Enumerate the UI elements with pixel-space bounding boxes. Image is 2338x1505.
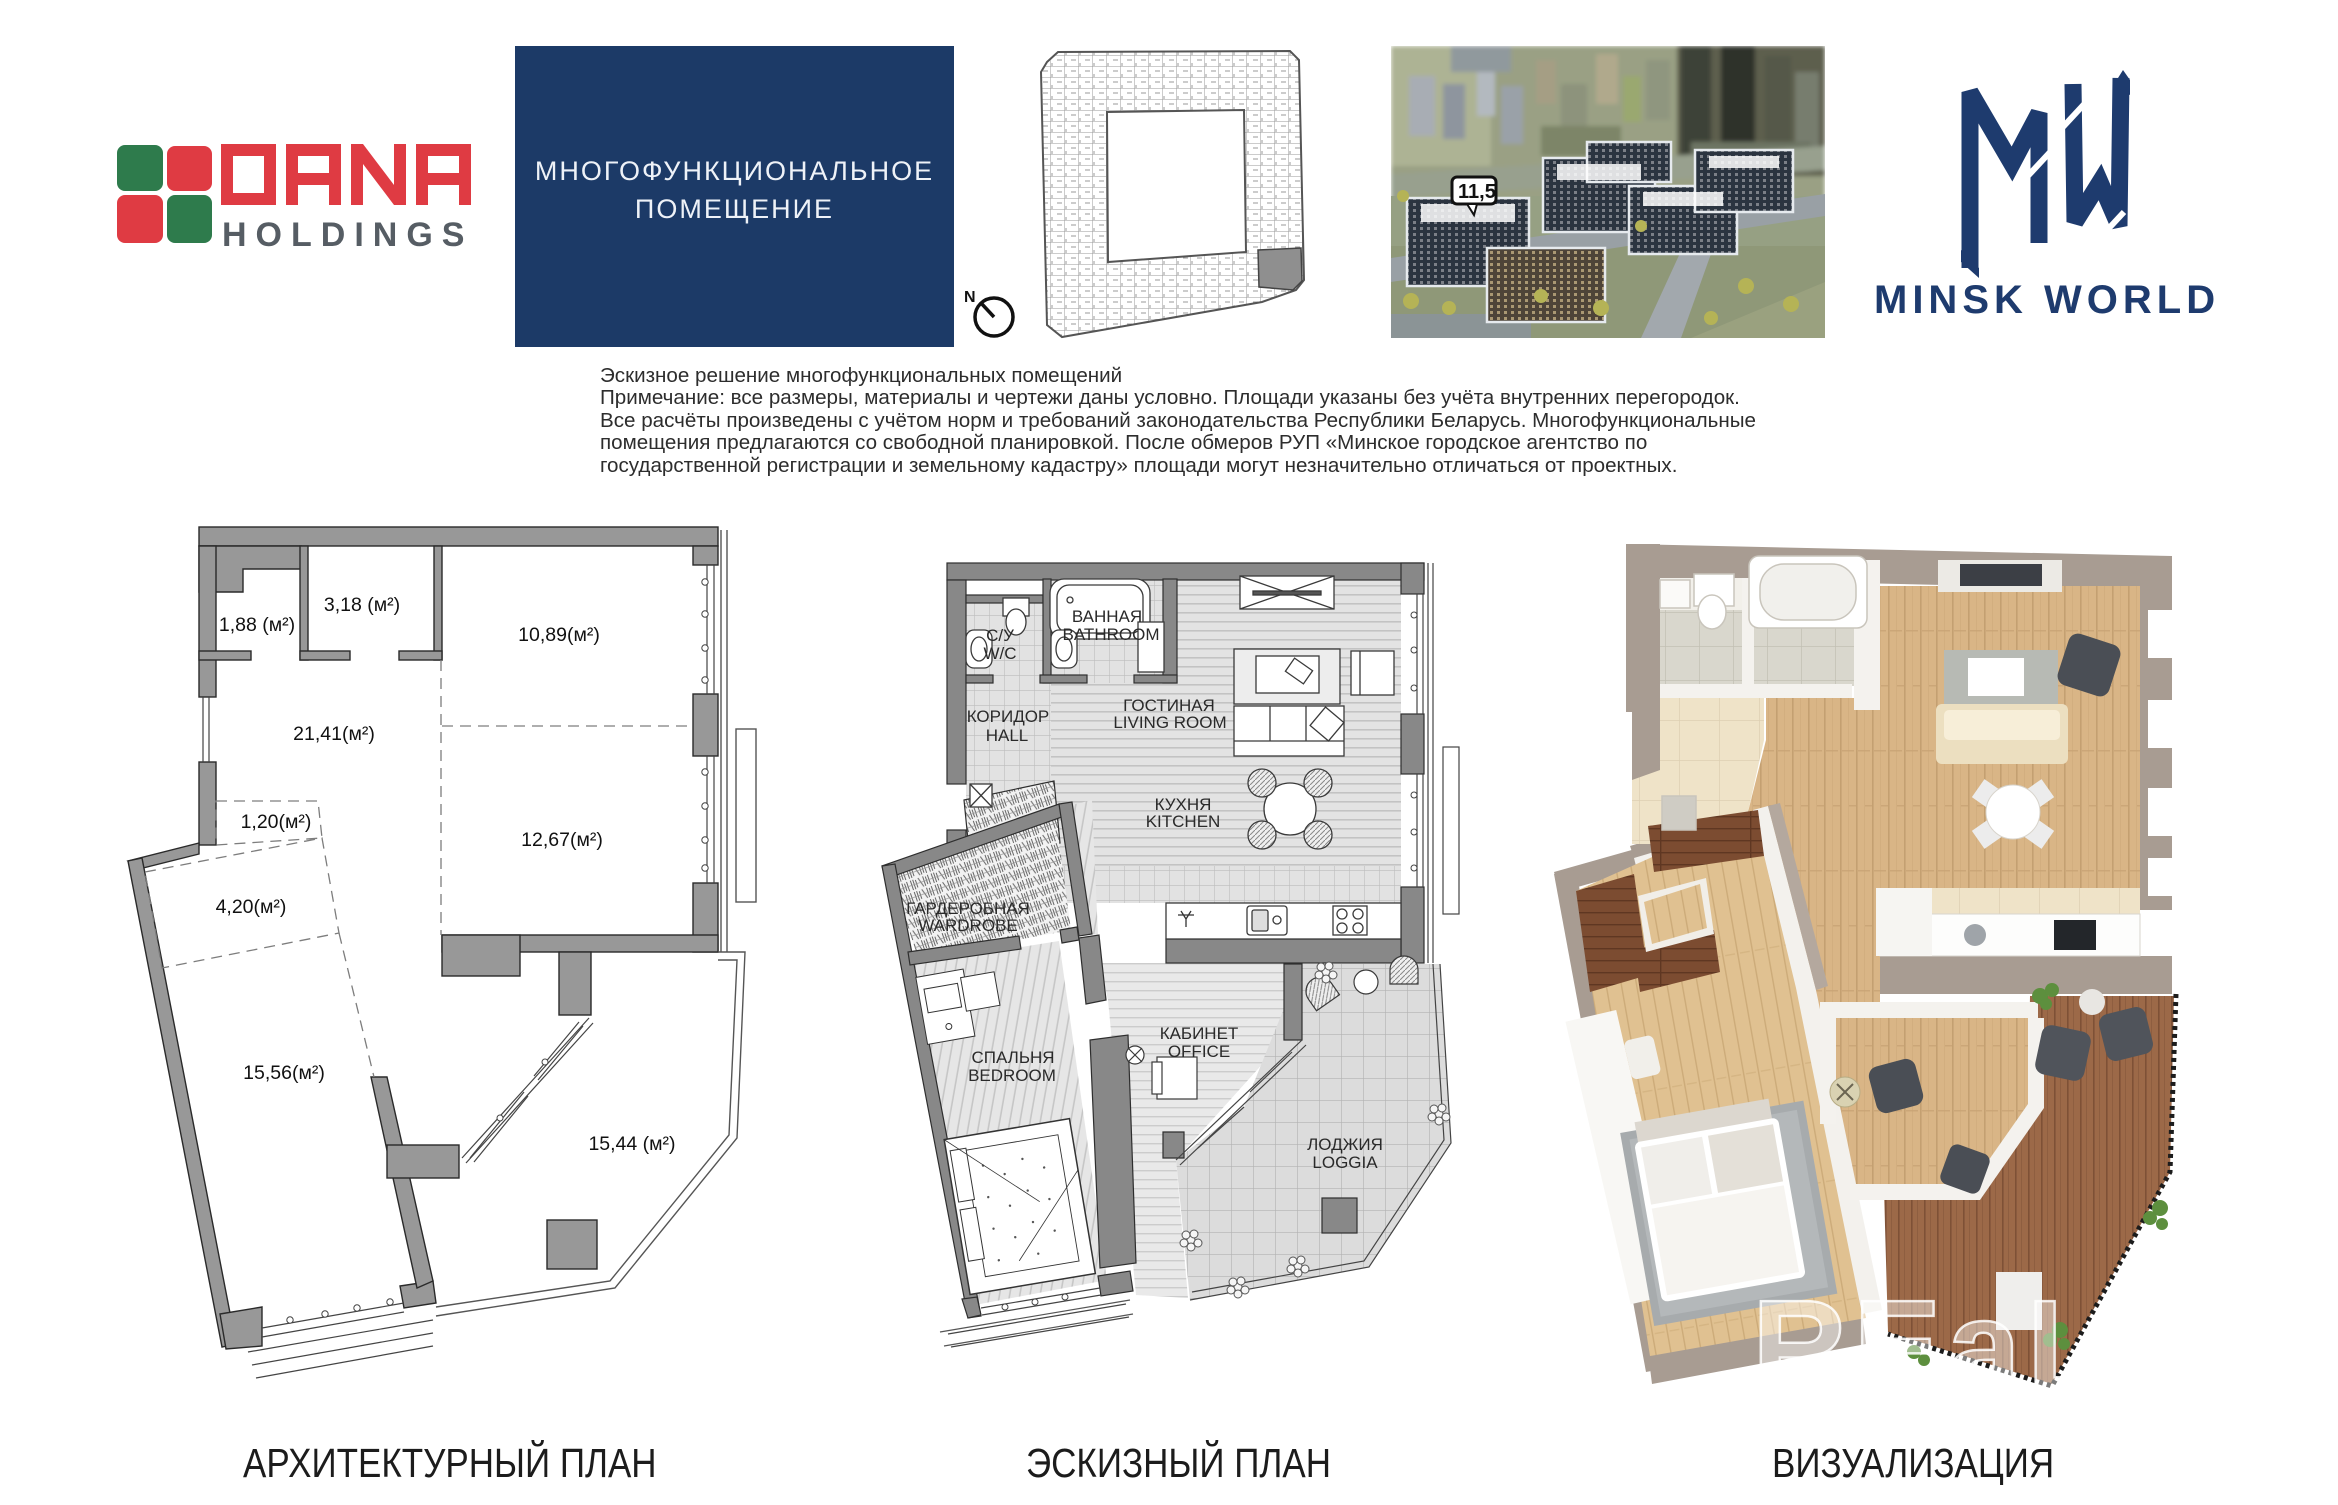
svg-text:С/У: С/У (986, 626, 1014, 645)
svg-text:HALL: HALL (986, 726, 1029, 745)
svg-text:WARDROBE: WARDROBE (918, 916, 1018, 935)
svg-text:12,67(м²): 12,67(м²) (521, 829, 603, 851)
svg-text:BEDROOM: BEDROOM (968, 1066, 1056, 1085)
svg-text:3,18 (м²): 3,18 (м²) (324, 594, 400, 616)
svg-text:KITCHEN: KITCHEN (1146, 812, 1221, 831)
svg-text:КАБИНЕТ: КАБИНЕТ (1160, 1024, 1239, 1043)
svg-text:ВАННАЯ: ВАННАЯ (1072, 607, 1142, 626)
svg-text:OFFICE: OFFICE (1168, 1042, 1230, 1061)
svg-text:15,56(м²): 15,56(м²) (243, 1062, 325, 1084)
svg-text:1,20(м²): 1,20(м²) (241, 811, 312, 833)
svg-text:1,88 (м²): 1,88 (м²) (219, 614, 295, 636)
svg-text:11,5: 11,5 (1458, 181, 1496, 203)
svg-text:СПАЛЬНЯ: СПАЛЬНЯ (971, 1048, 1054, 1067)
svg-text:N: N (964, 289, 976, 306)
svg-text:MINSK WORLD: MINSK WORLD (1874, 278, 2220, 320)
svg-text:15,44 (м²): 15,44 (м²) (588, 1133, 675, 1155)
svg-text:10,89(м²): 10,89(м²) (518, 624, 600, 646)
svg-text:LIVING ROOM: LIVING ROOM (1113, 713, 1226, 732)
svg-text:4,20(м²): 4,20(м²) (216, 896, 287, 918)
svg-text:HOLDINGS: HOLDINGS (222, 216, 473, 250)
svg-text:ЛОДЖИЯ: ЛОДЖИЯ (1307, 1135, 1383, 1154)
svg-text:BATHROOM: BATHROOM (1063, 625, 1160, 644)
svg-text:LOGGIA: LOGGIA (1312, 1153, 1378, 1172)
svg-text:W/C: W/C (983, 644, 1016, 663)
svg-text:21,41(м²): 21,41(м²) (293, 723, 375, 745)
svg-text:КОРИДОР: КОРИДОР (967, 707, 1050, 726)
svg-text:REaLT: REaLT (1752, 1273, 2190, 1420)
